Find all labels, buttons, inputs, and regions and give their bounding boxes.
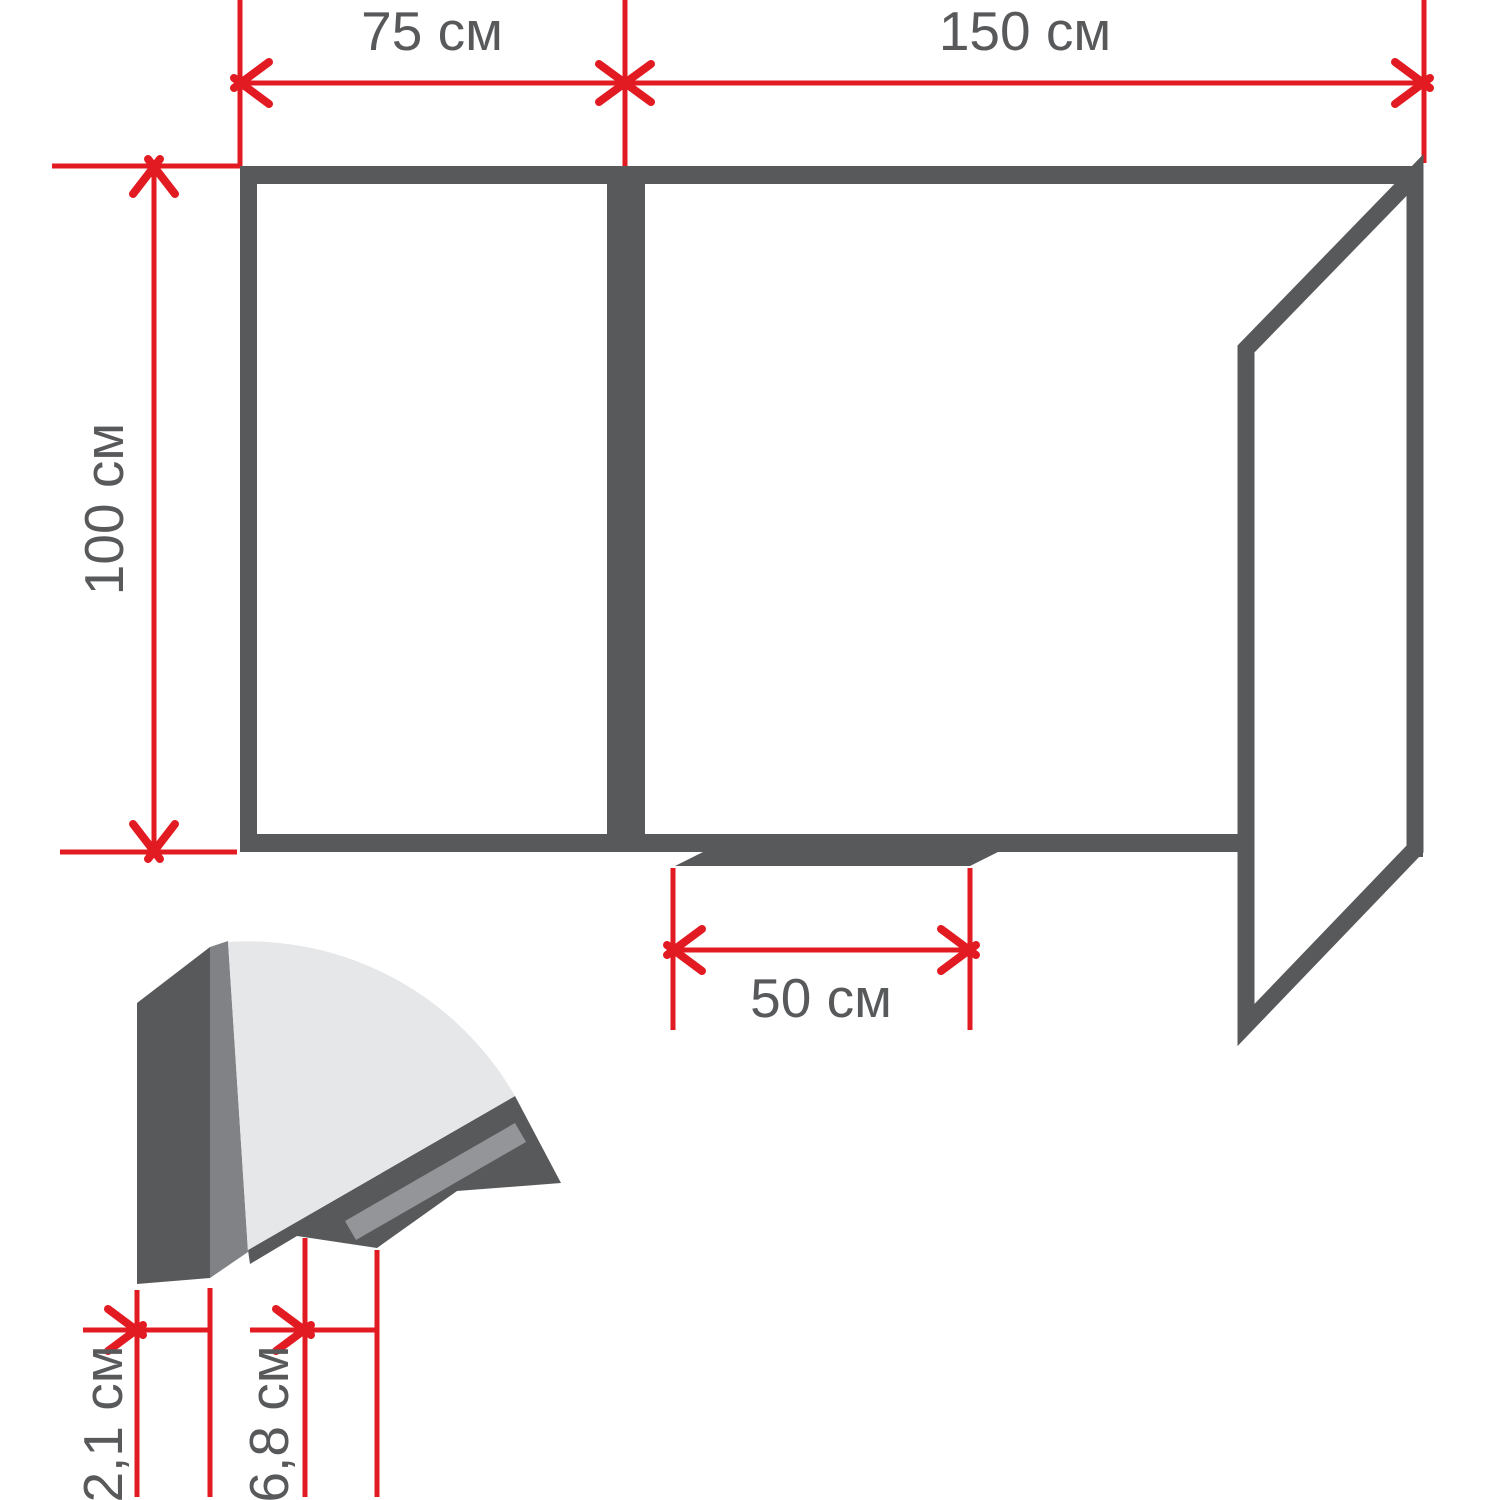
profile-frame-bar <box>137 947 210 1284</box>
board-front-view <box>240 166 1423 1025</box>
frame-bottom-bar <box>240 834 1256 852</box>
dimension-drawing-canvas: 75 см 150 см 100 см 50 см 2,1 см 6,8 см <box>0 0 1500 1500</box>
dim-label-board-height: 100 см <box>73 423 135 595</box>
marker-tray <box>675 852 998 866</box>
corner-profile-detail <box>137 941 561 1284</box>
dim-label-left-panel-width: 75 см <box>361 0 503 62</box>
dim-label-profile-thickness: 2,1 см <box>72 1345 134 1500</box>
frame-left-bar <box>240 166 257 852</box>
dim-label-tray-depth: 6,8 см <box>238 1345 300 1500</box>
frame-center-divider <box>607 166 645 852</box>
frame-top-bar <box>240 166 1423 184</box>
open-door-panel <box>1246 175 1415 1025</box>
dim-label-tray-length: 50 см <box>750 967 892 1029</box>
dimension-annotations <box>52 0 1430 1497</box>
dim-label-main-panel-width: 150 см <box>939 0 1111 62</box>
